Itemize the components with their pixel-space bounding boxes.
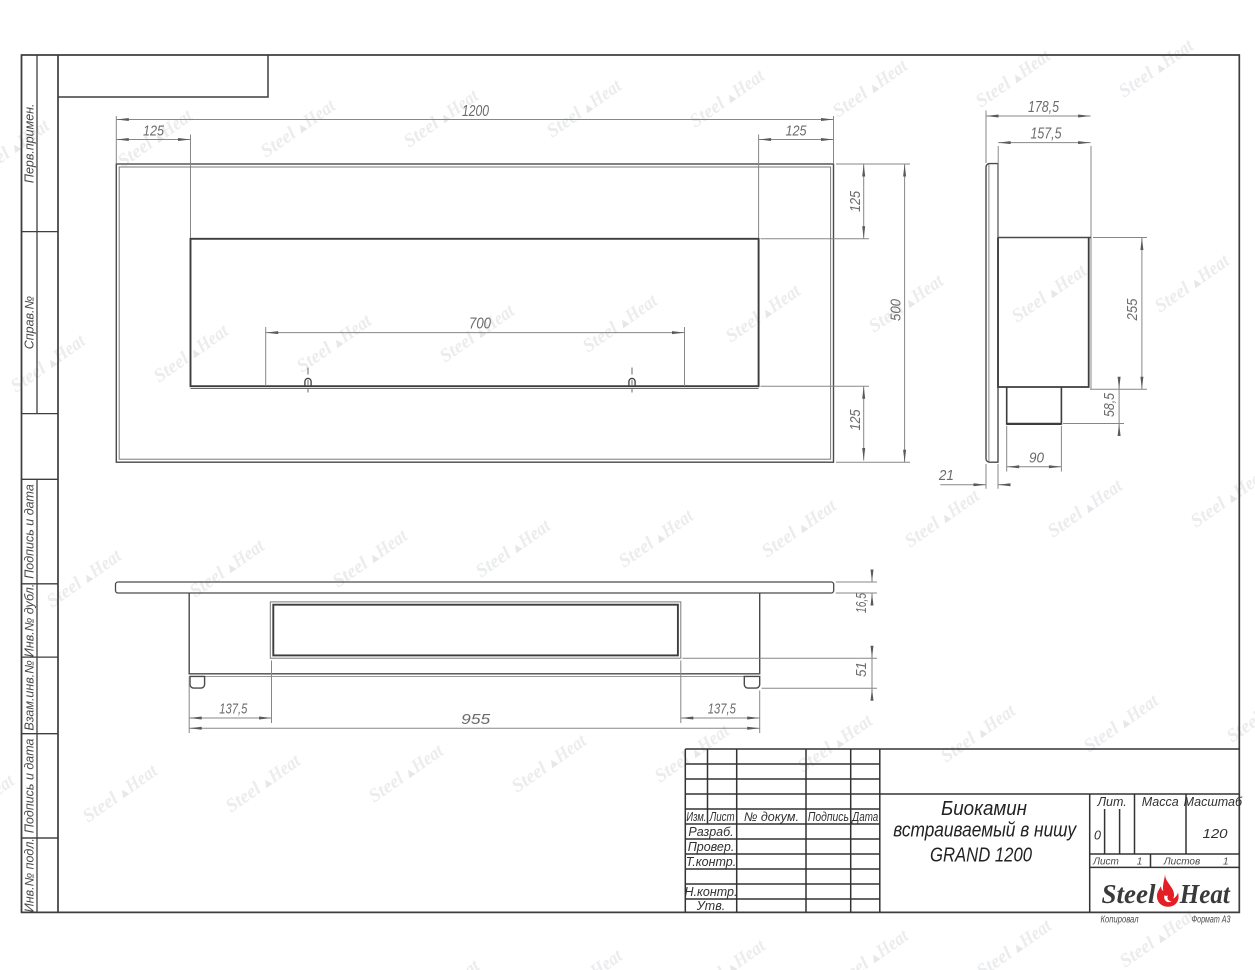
svg-text:Н.контр.: Н.контр. <box>685 885 738 899</box>
svg-text:500: 500 <box>888 298 905 321</box>
svg-text:№ докум.: № докум. <box>744 810 799 824</box>
svg-text:Дата: Дата <box>851 810 879 824</box>
svg-text:137,5: 137,5 <box>708 701 736 718</box>
svg-text:125: 125 <box>847 409 864 431</box>
svg-text:178,5: 178,5 <box>1028 99 1059 116</box>
svg-text:125: 125 <box>847 190 864 212</box>
svg-text:Подпись и дата: Подпись и дата <box>23 484 37 579</box>
svg-text:Разраб.: Разраб. <box>688 825 733 839</box>
svg-text:Справ.№: Справ.№ <box>23 295 37 349</box>
svg-text:Взам.инв.№: Взам.инв.№ <box>23 660 37 731</box>
svg-text:Формат А3: Формат А3 <box>1192 915 1231 926</box>
svg-text:встраиваемый в нишу: встраиваемый в нишу <box>893 820 1077 842</box>
svg-text:125: 125 <box>786 123 808 140</box>
svg-text:16,5: 16,5 <box>853 593 870 613</box>
svg-text:Листов: Листов <box>1163 857 1200 868</box>
svg-text:Провер.: Провер. <box>688 840 735 854</box>
svg-text:137,5: 137,5 <box>219 701 247 718</box>
svg-text:Инв.№ дубл.: Инв.№ дубл. <box>23 584 37 657</box>
svg-text:Изм.: Изм. <box>686 810 706 824</box>
svg-text:255: 255 <box>1124 298 1141 321</box>
svg-text:Инв.№ подл.: Инв.№ подл. <box>23 838 37 912</box>
svg-text:1200: 1200 <box>462 103 489 120</box>
svg-text:Т.контр.: Т.контр. <box>686 855 736 869</box>
svg-text:120: 120 <box>1203 827 1228 841</box>
svg-text:Лист: Лист <box>709 810 735 824</box>
svg-text:Heat: Heat <box>1179 879 1231 909</box>
svg-text:GRAND 1200: GRAND 1200 <box>930 845 1032 867</box>
svg-text:Перв.примен.: Перв.примен. <box>23 103 37 183</box>
svg-text:700: 700 <box>469 316 491 333</box>
svg-text:157,5: 157,5 <box>1031 126 1062 143</box>
svg-text:Масштаб: Масштаб <box>1184 795 1243 809</box>
svg-text:125: 125 <box>143 123 165 140</box>
svg-text:21: 21 <box>938 467 954 484</box>
svg-text:90: 90 <box>1029 449 1045 466</box>
svg-text:Биокамин: Биокамин <box>941 798 1027 820</box>
svg-text:Утв.: Утв. <box>696 899 725 913</box>
svg-text:1: 1 <box>1223 857 1229 868</box>
svg-text:Лит.: Лит. <box>1096 795 1126 809</box>
svg-text:58,5: 58,5 <box>1101 392 1118 417</box>
svg-text:Масса: Масса <box>1142 795 1179 809</box>
svg-text:Подпись и дата: Подпись и дата <box>23 738 37 833</box>
svg-text:Steel: Steel <box>1102 879 1156 909</box>
svg-text:Подпись: Подпись <box>808 810 849 824</box>
svg-text:51: 51 <box>853 662 870 677</box>
svg-text:Копировал: Копировал <box>1101 915 1139 926</box>
svg-text:Лист: Лист <box>1092 857 1119 868</box>
svg-text:955: 955 <box>461 711 491 728</box>
svg-text:1: 1 <box>1137 857 1143 868</box>
svg-text:0: 0 <box>1094 829 1101 843</box>
